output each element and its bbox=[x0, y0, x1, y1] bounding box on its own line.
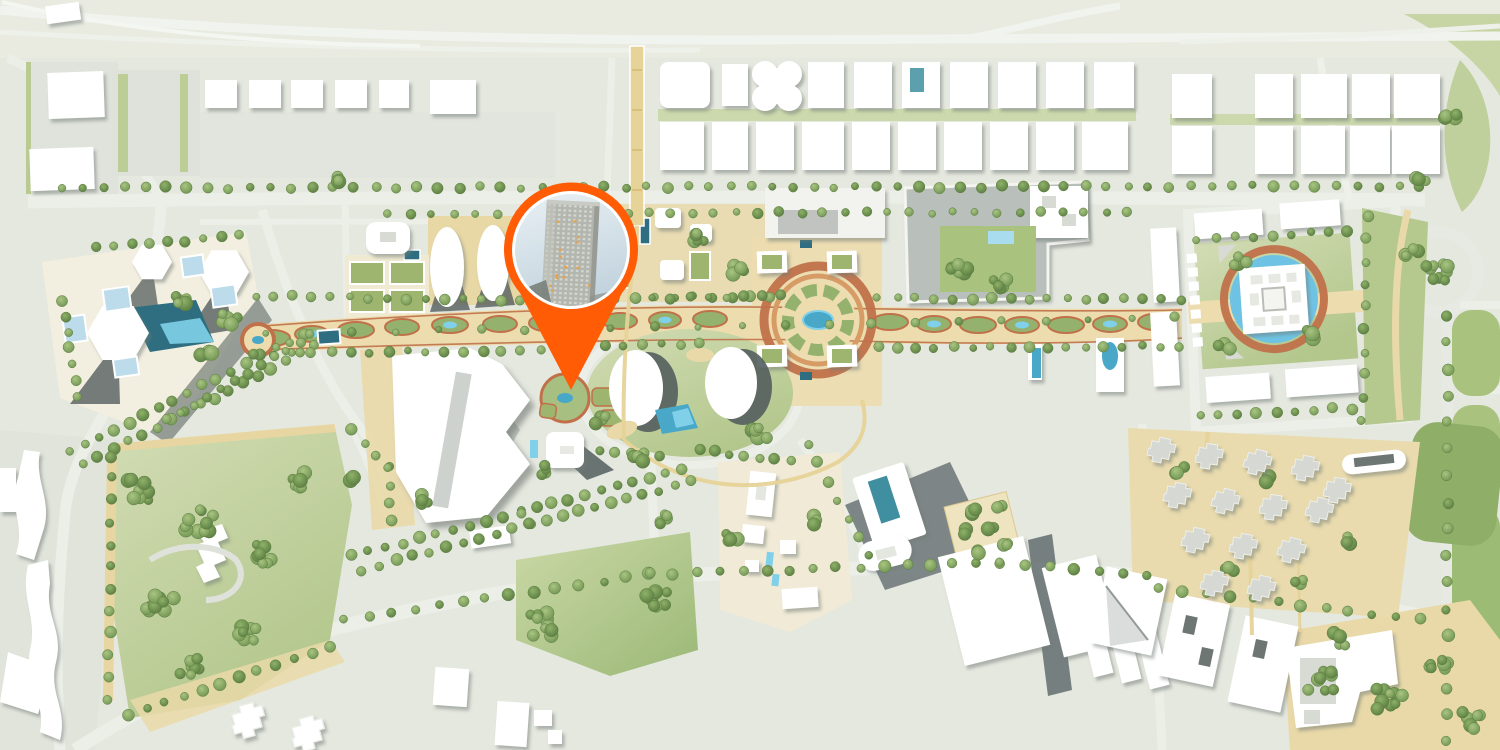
tree bbox=[967, 294, 978, 305]
tree bbox=[545, 497, 557, 509]
tree bbox=[477, 295, 485, 303]
tree bbox=[1224, 591, 1236, 603]
tree bbox=[955, 182, 966, 193]
tree bbox=[306, 292, 316, 302]
tree bbox=[56, 296, 67, 307]
tree bbox=[1442, 523, 1453, 534]
tree bbox=[747, 181, 756, 190]
tree bbox=[1358, 323, 1369, 334]
tree bbox=[557, 510, 569, 522]
tree bbox=[104, 672, 114, 682]
tree bbox=[517, 185, 524, 192]
tree bbox=[1363, 211, 1374, 222]
tree bbox=[986, 292, 997, 303]
tree bbox=[1002, 540, 1012, 550]
tree bbox=[345, 423, 357, 435]
tree bbox=[386, 515, 397, 526]
tree bbox=[872, 182, 882, 192]
tree bbox=[1354, 182, 1362, 190]
tree bbox=[661, 469, 670, 478]
tree bbox=[106, 494, 117, 505]
tree bbox=[1250, 407, 1262, 419]
tree bbox=[1442, 443, 1452, 453]
tree bbox=[473, 534, 484, 545]
lit-window bbox=[551, 290, 554, 292]
tree bbox=[644, 473, 656, 485]
tree bbox=[153, 424, 162, 433]
tree bbox=[1119, 294, 1128, 303]
tree bbox=[180, 182, 192, 194]
tree bbox=[1332, 181, 1341, 190]
tree bbox=[1441, 736, 1451, 746]
tree bbox=[197, 379, 208, 390]
tree bbox=[520, 326, 529, 335]
tree bbox=[609, 447, 620, 458]
tree bbox=[655, 451, 665, 461]
tree bbox=[949, 341, 959, 351]
tree bbox=[267, 183, 275, 191]
tree bbox=[1259, 475, 1273, 489]
lit-window bbox=[555, 274, 558, 276]
tree bbox=[735, 262, 748, 275]
tree bbox=[991, 501, 1003, 513]
tree bbox=[1129, 315, 1136, 322]
tree bbox=[549, 582, 561, 594]
tree bbox=[365, 349, 373, 357]
tree bbox=[658, 340, 665, 347]
tree bbox=[372, 182, 381, 191]
tree bbox=[137, 409, 150, 422]
tree bbox=[381, 543, 389, 551]
tree bbox=[120, 182, 130, 192]
tree bbox=[1231, 232, 1240, 241]
lit-window bbox=[574, 220, 577, 222]
tree bbox=[924, 559, 936, 571]
tree bbox=[226, 368, 235, 377]
tree bbox=[478, 346, 489, 357]
tree bbox=[1396, 182, 1404, 190]
tree bbox=[173, 298, 182, 307]
tree bbox=[451, 210, 459, 218]
tree bbox=[263, 330, 269, 336]
tree bbox=[619, 342, 627, 350]
tree bbox=[290, 654, 299, 663]
tree bbox=[589, 417, 602, 430]
tree bbox=[95, 433, 103, 441]
tree bbox=[686, 292, 695, 301]
tree bbox=[866, 319, 876, 329]
tree bbox=[477, 325, 486, 334]
tree bbox=[1443, 391, 1453, 401]
tree bbox=[955, 317, 963, 325]
tree bbox=[1442, 417, 1451, 426]
tree bbox=[411, 606, 420, 615]
tree bbox=[398, 539, 408, 549]
tree bbox=[756, 454, 765, 463]
tree bbox=[949, 208, 956, 215]
tree bbox=[160, 698, 168, 706]
tree bbox=[386, 482, 395, 491]
tree bbox=[401, 294, 412, 305]
tree bbox=[361, 440, 369, 448]
tree bbox=[79, 460, 87, 468]
tree bbox=[106, 561, 115, 570]
master-plan-map bbox=[0, 0, 1500, 750]
tree bbox=[91, 451, 103, 463]
tree bbox=[851, 183, 858, 190]
tree bbox=[127, 491, 141, 505]
tree bbox=[63, 342, 74, 353]
tree bbox=[738, 291, 749, 302]
tree bbox=[1142, 571, 1151, 580]
tree bbox=[1291, 408, 1299, 416]
tree bbox=[1170, 466, 1183, 479]
tree bbox=[929, 210, 936, 217]
tree bbox=[830, 562, 840, 572]
tree bbox=[1396, 689, 1409, 702]
tree bbox=[1187, 181, 1196, 190]
tree bbox=[254, 548, 266, 560]
tree bbox=[1415, 613, 1426, 624]
tree bbox=[903, 559, 913, 569]
tree bbox=[969, 503, 982, 516]
tree bbox=[757, 290, 767, 300]
tree bbox=[1143, 183, 1151, 191]
tree bbox=[65, 329, 73, 337]
tree bbox=[1287, 231, 1295, 239]
tree bbox=[1118, 569, 1128, 579]
tree bbox=[1268, 231, 1279, 242]
tree bbox=[435, 601, 443, 609]
lit-window bbox=[549, 285, 552, 287]
tree bbox=[724, 533, 737, 546]
tree bbox=[649, 294, 656, 301]
tree bbox=[671, 481, 680, 490]
tree bbox=[1341, 226, 1353, 238]
tree bbox=[346, 549, 357, 560]
tree bbox=[733, 208, 740, 215]
tree bbox=[1437, 655, 1447, 665]
tree bbox=[1442, 576, 1452, 586]
tree bbox=[952, 258, 965, 271]
tree bbox=[249, 636, 259, 646]
tree bbox=[407, 550, 418, 561]
tree bbox=[105, 519, 114, 528]
tree bbox=[761, 432, 773, 444]
tree bbox=[217, 385, 225, 393]
tree bbox=[929, 344, 938, 353]
tree bbox=[1214, 411, 1222, 419]
tree bbox=[124, 473, 138, 487]
tree bbox=[296, 348, 305, 357]
tree bbox=[347, 327, 356, 336]
tree bbox=[645, 208, 654, 217]
tree bbox=[233, 671, 246, 684]
tree bbox=[455, 183, 466, 194]
tree bbox=[371, 451, 380, 460]
tree bbox=[1068, 563, 1080, 575]
tree bbox=[725, 451, 733, 459]
tree bbox=[993, 281, 1004, 292]
tree bbox=[1347, 404, 1358, 415]
tree bbox=[1098, 341, 1109, 352]
tree bbox=[375, 562, 384, 571]
tree bbox=[787, 456, 796, 465]
tree bbox=[1249, 233, 1258, 242]
tree bbox=[230, 376, 240, 386]
tree bbox=[1036, 207, 1046, 217]
tree bbox=[665, 294, 676, 305]
tree bbox=[250, 623, 261, 634]
tree bbox=[798, 209, 807, 218]
tree bbox=[243, 369, 254, 380]
tree bbox=[422, 295, 429, 302]
tree bbox=[162, 236, 173, 247]
tree bbox=[253, 371, 264, 382]
tree bbox=[197, 685, 209, 697]
tree bbox=[809, 564, 818, 573]
tree bbox=[363, 295, 372, 304]
tree bbox=[1472, 710, 1483, 721]
tree bbox=[1095, 567, 1104, 576]
tree bbox=[204, 345, 219, 360]
tree bbox=[248, 349, 258, 359]
tree bbox=[1307, 228, 1315, 236]
tree bbox=[590, 503, 598, 511]
tree bbox=[234, 230, 243, 239]
lit-window bbox=[556, 277, 559, 279]
tree bbox=[91, 242, 101, 252]
tree bbox=[186, 670, 195, 679]
tree bbox=[325, 641, 336, 652]
tree bbox=[224, 317, 239, 332]
tree bbox=[1038, 181, 1049, 192]
tree bbox=[1082, 344, 1090, 352]
tree bbox=[692, 228, 702, 238]
tree bbox=[541, 515, 552, 526]
tree bbox=[894, 183, 902, 191]
tree bbox=[913, 181, 925, 193]
tree bbox=[1328, 684, 1339, 695]
tree bbox=[286, 339, 294, 347]
tree bbox=[879, 560, 892, 573]
tree bbox=[306, 330, 315, 339]
tree bbox=[1441, 470, 1452, 481]
tree bbox=[1324, 227, 1333, 236]
tree bbox=[1085, 317, 1091, 323]
tree bbox=[203, 183, 213, 193]
tree bbox=[637, 489, 647, 499]
tree bbox=[781, 321, 790, 330]
tree bbox=[694, 338, 704, 348]
tree bbox=[693, 567, 703, 577]
tree bbox=[287, 290, 297, 300]
tree bbox=[144, 238, 154, 248]
tree bbox=[480, 515, 493, 528]
tree bbox=[296, 338, 306, 348]
tree bbox=[622, 184, 630, 192]
tree bbox=[523, 518, 534, 529]
tree bbox=[177, 409, 185, 417]
tree bbox=[830, 184, 838, 192]
tree bbox=[465, 521, 475, 531]
tree bbox=[1327, 402, 1338, 413]
tree bbox=[996, 179, 1008, 191]
tree bbox=[192, 653, 203, 664]
tree bbox=[71, 375, 81, 385]
tree bbox=[686, 475, 696, 485]
tree bbox=[895, 294, 903, 302]
tree bbox=[948, 295, 958, 305]
tree bbox=[460, 539, 468, 547]
lit-window bbox=[564, 266, 567, 268]
tree bbox=[440, 541, 452, 553]
tree bbox=[384, 346, 395, 357]
tree bbox=[73, 392, 81, 400]
master-plan-screenshot bbox=[0, 0, 1500, 750]
lit-window bbox=[577, 241, 580, 243]
tree bbox=[845, 516, 853, 524]
tree bbox=[496, 346, 506, 356]
tree bbox=[1223, 342, 1236, 355]
tree bbox=[383, 295, 391, 303]
tree bbox=[1213, 340, 1224, 351]
tree bbox=[223, 185, 232, 194]
tree bbox=[154, 403, 164, 413]
tree bbox=[1333, 630, 1347, 644]
tree bbox=[579, 490, 590, 501]
tree bbox=[269, 292, 278, 301]
tree bbox=[676, 464, 687, 475]
tree bbox=[1006, 293, 1016, 303]
tree bbox=[995, 558, 1004, 567]
tree bbox=[413, 531, 426, 544]
tree bbox=[620, 571, 632, 583]
linear-pool-1 bbox=[1032, 348, 1041, 378]
tree bbox=[103, 650, 113, 660]
tree bbox=[100, 183, 109, 192]
tree bbox=[685, 181, 694, 190]
tree bbox=[769, 183, 776, 190]
tree bbox=[1303, 684, 1314, 695]
tree bbox=[947, 558, 957, 568]
tree bbox=[1154, 583, 1163, 592]
tree bbox=[655, 488, 663, 496]
tree bbox=[607, 325, 614, 332]
tree bbox=[807, 518, 821, 532]
tree bbox=[739, 322, 746, 329]
tree bbox=[1059, 181, 1069, 191]
tree bbox=[677, 341, 686, 350]
tree bbox=[365, 612, 375, 622]
tree bbox=[472, 210, 479, 217]
tree bbox=[1138, 341, 1146, 349]
tree bbox=[1079, 208, 1087, 216]
clover-building bbox=[752, 61, 802, 111]
tree bbox=[493, 210, 502, 219]
tree bbox=[348, 182, 358, 192]
tree bbox=[662, 587, 672, 597]
tree bbox=[1361, 349, 1369, 357]
tree bbox=[246, 183, 254, 191]
tree bbox=[993, 209, 1002, 218]
tree bbox=[1442, 629, 1455, 642]
tree bbox=[884, 208, 891, 215]
oval-hall-2 bbox=[477, 225, 509, 301]
tree bbox=[1442, 364, 1454, 376]
tree bbox=[497, 512, 509, 524]
tree bbox=[517, 509, 526, 518]
tree bbox=[705, 294, 712, 301]
tree bbox=[272, 343, 280, 351]
tree bbox=[183, 389, 191, 397]
tree bbox=[811, 183, 820, 192]
tree bbox=[217, 231, 228, 242]
tree bbox=[762, 565, 773, 576]
tree bbox=[293, 473, 308, 488]
tree bbox=[308, 648, 319, 659]
tree bbox=[958, 528, 971, 541]
tree bbox=[1164, 183, 1174, 193]
tree bbox=[1137, 294, 1147, 304]
tree bbox=[270, 352, 279, 361]
tree bbox=[970, 345, 977, 352]
tree bbox=[1440, 275, 1450, 285]
tree bbox=[199, 235, 207, 243]
tree bbox=[105, 452, 117, 464]
tree bbox=[645, 568, 655, 578]
tree bbox=[1025, 295, 1034, 304]
tree bbox=[752, 208, 763, 219]
tree bbox=[200, 517, 212, 529]
tree bbox=[1020, 560, 1031, 571]
tree bbox=[1043, 294, 1051, 302]
tree bbox=[1360, 368, 1370, 378]
tree bbox=[1428, 274, 1439, 285]
tree bbox=[601, 578, 609, 586]
tree bbox=[573, 580, 584, 591]
tree bbox=[905, 208, 914, 217]
tree bbox=[1016, 209, 1024, 217]
tree bbox=[723, 294, 731, 302]
tree bbox=[1371, 683, 1383, 695]
tree bbox=[383, 210, 391, 218]
tree bbox=[1440, 110, 1453, 123]
tree bbox=[709, 209, 718, 218]
tree bbox=[66, 447, 74, 455]
tree bbox=[391, 553, 403, 565]
tree bbox=[79, 184, 87, 192]
reflecting-pool-west bbox=[318, 329, 341, 345]
tree bbox=[1441, 683, 1452, 694]
tree bbox=[1362, 259, 1370, 267]
tree bbox=[1045, 561, 1055, 571]
tree bbox=[256, 360, 267, 371]
tree bbox=[1233, 410, 1242, 419]
tree bbox=[1018, 181, 1029, 192]
tree bbox=[537, 346, 546, 355]
tree bbox=[422, 349, 429, 356]
tree bbox=[640, 588, 654, 602]
tree bbox=[1401, 251, 1410, 260]
tree bbox=[251, 666, 261, 676]
tree bbox=[817, 208, 826, 217]
tree bbox=[709, 445, 721, 457]
tree bbox=[911, 318, 920, 327]
tree bbox=[492, 530, 501, 539]
lit-window bbox=[563, 276, 566, 278]
tree bbox=[333, 175, 343, 185]
